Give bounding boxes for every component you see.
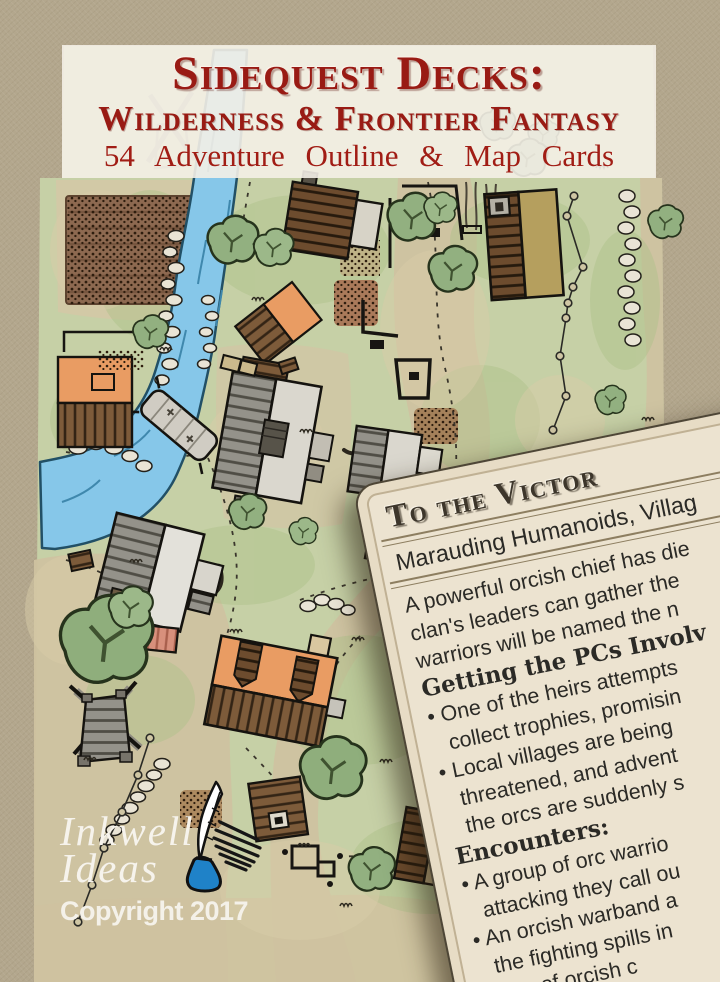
product-tagline: 54 Adventure Outline & Map Cards <box>62 137 656 174</box>
title-panel: Sidequest Decks: Wilderness & Frontier F… <box>62 45 656 178</box>
quill-inkpot-icon <box>178 778 270 894</box>
copyright-text: Copyright 2017 <box>60 896 248 927</box>
product-title: Sidequest Decks: <box>62 48 656 100</box>
building-hall-top-right <box>484 189 563 300</box>
publisher-name-line2: Ideas <box>60 850 195 886</box>
product-subtitle: Wilderness & Frontier Fantasy <box>62 100 656 137</box>
publisher-logo: Inkwell Ideas <box>60 812 195 886</box>
product-box-cover: Sidequest Decks: Wilderness & Frontier F… <box>0 0 720 982</box>
building-house-left-edge <box>58 350 144 447</box>
